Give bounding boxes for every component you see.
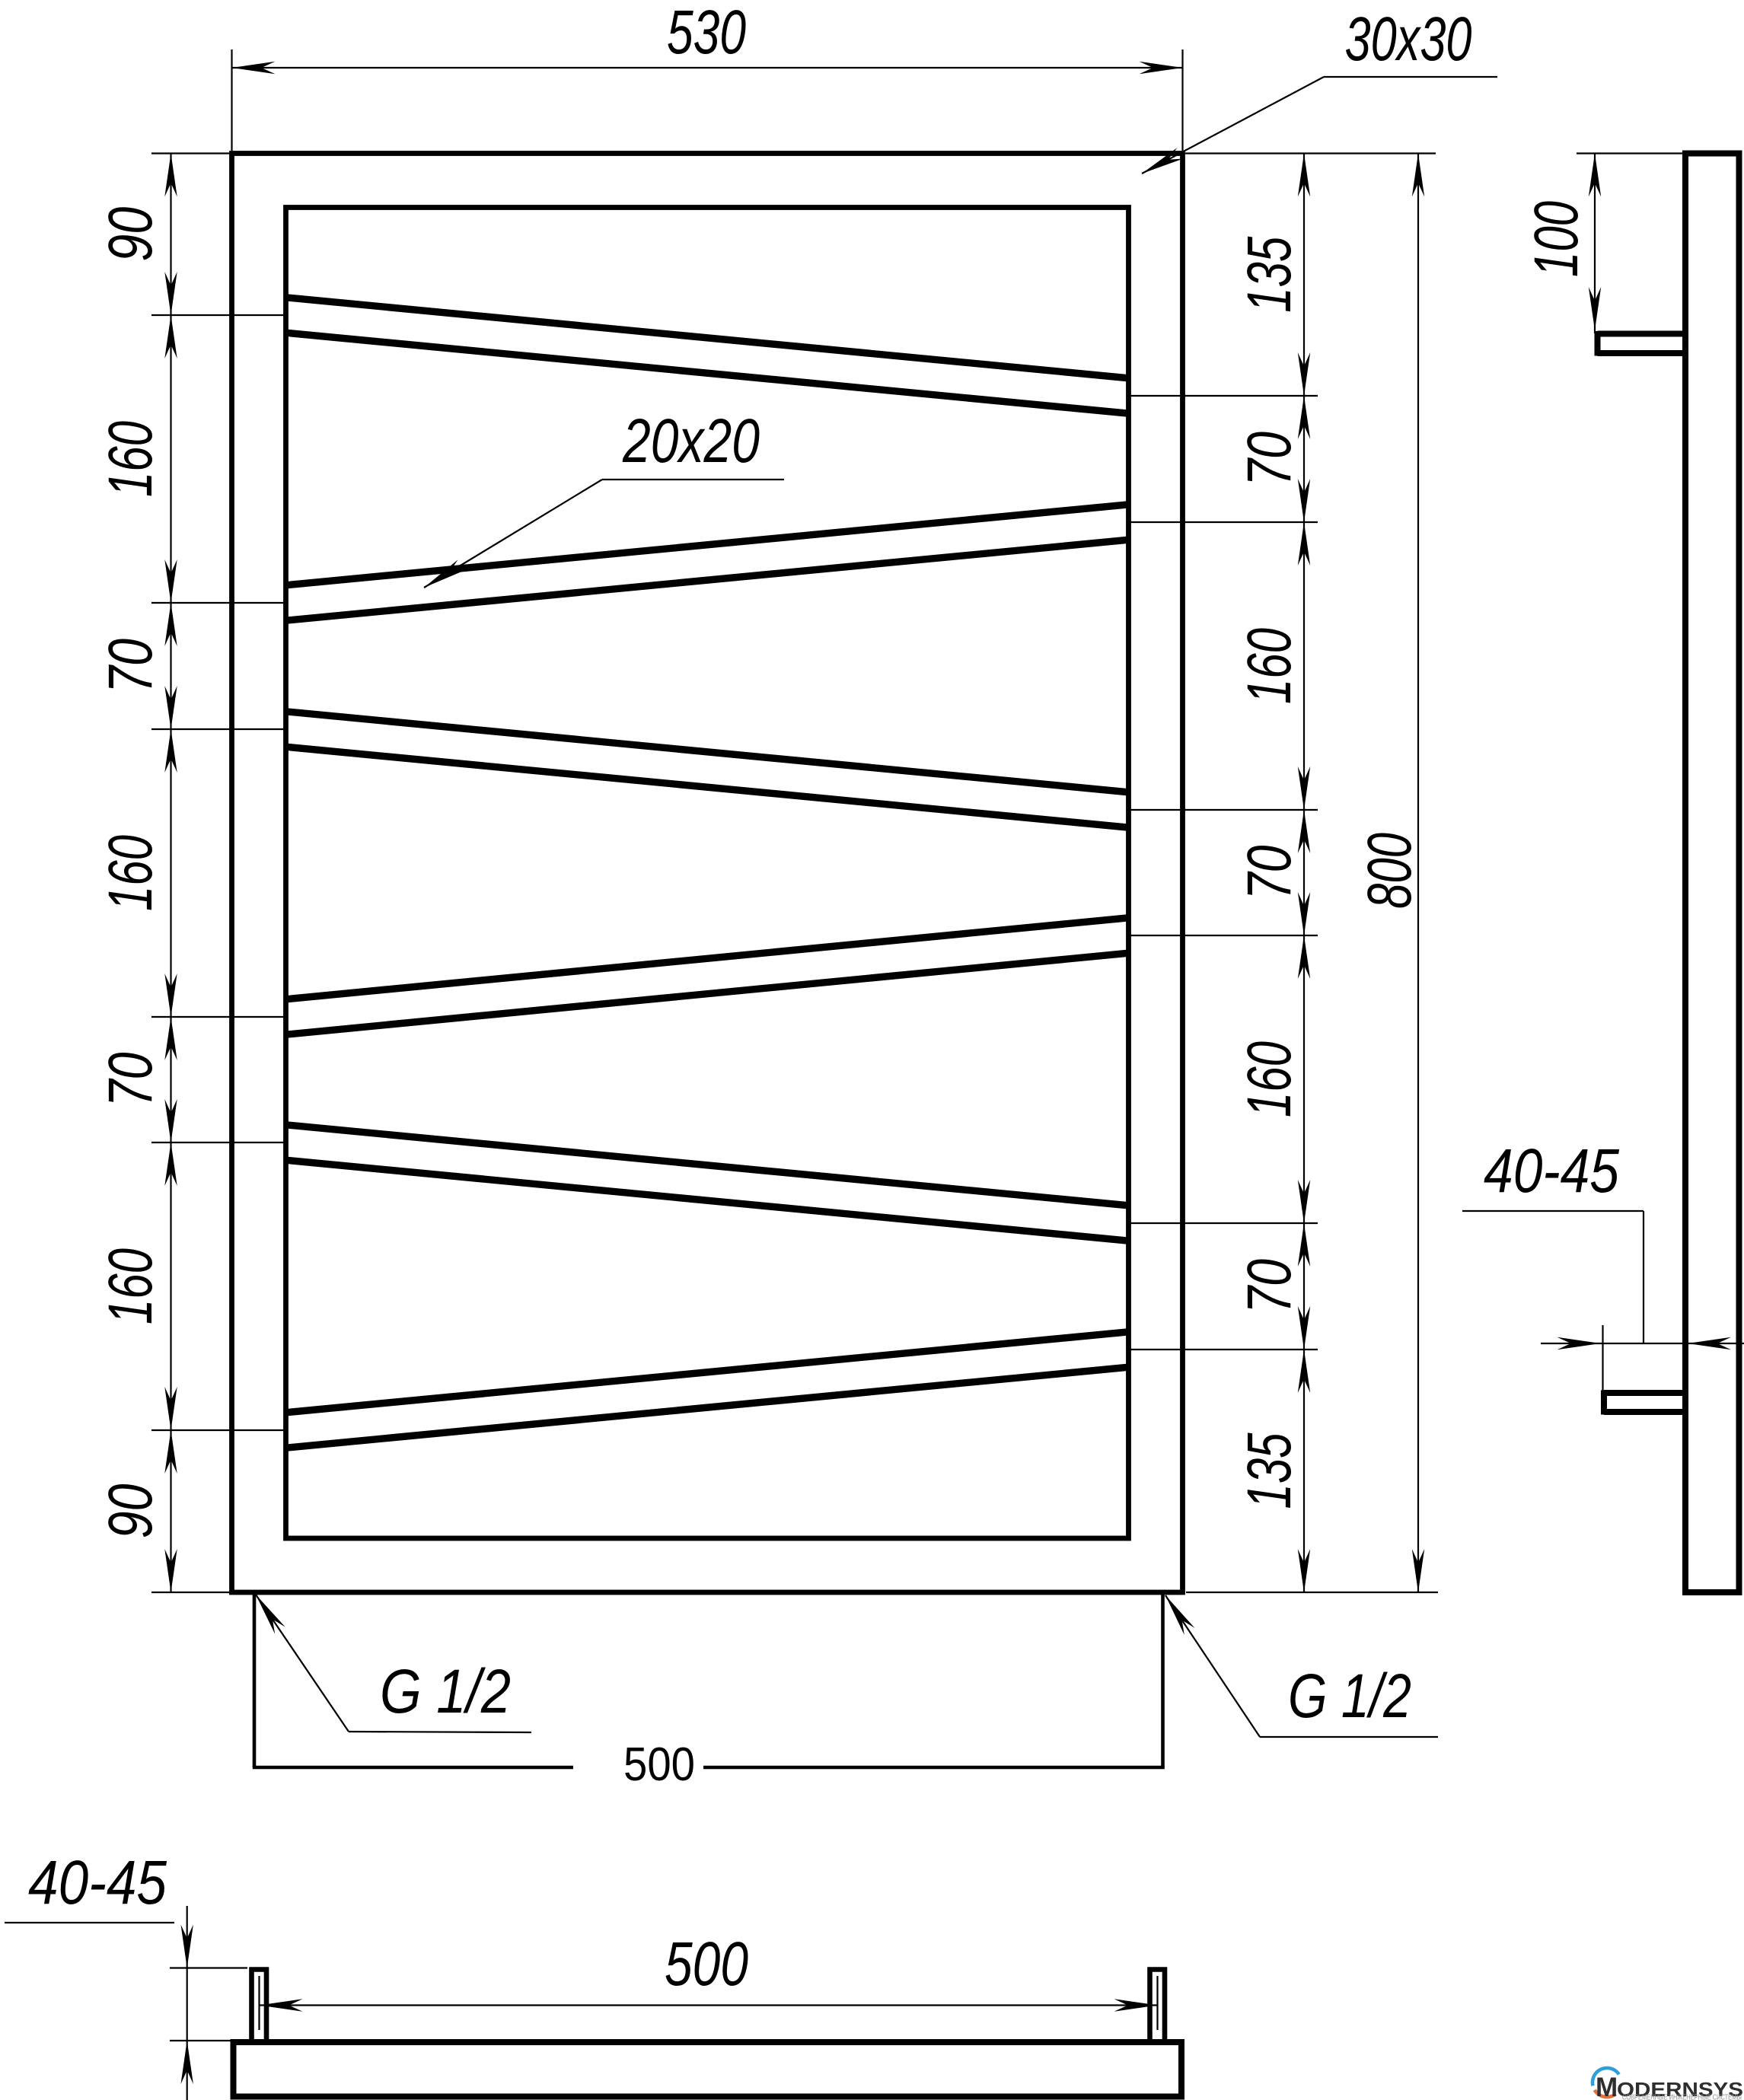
svg-text:70: 70 bbox=[96, 639, 165, 693]
svg-text:160: 160 bbox=[96, 835, 165, 911]
svg-text:70: 70 bbox=[96, 1053, 165, 1107]
svg-text:70: 70 bbox=[1235, 846, 1304, 900]
svg-text:160: 160 bbox=[96, 1248, 165, 1324]
svg-text:135: 135 bbox=[1235, 237, 1304, 313]
svg-text:800: 800 bbox=[1355, 833, 1424, 909]
svg-text:160: 160 bbox=[1235, 1041, 1304, 1117]
svg-text:500: 500 bbox=[623, 1738, 695, 1791]
svg-text:90: 90 bbox=[96, 1484, 165, 1539]
svg-text:160: 160 bbox=[1235, 628, 1304, 704]
svg-text:530: 530 bbox=[667, 0, 746, 67]
svg-text:70: 70 bbox=[1235, 432, 1304, 486]
svg-text:40-45: 40-45 bbox=[1484, 1136, 1619, 1206]
svg-text:90: 90 bbox=[96, 207, 165, 262]
svg-text:160: 160 bbox=[96, 421, 165, 497]
svg-text:70: 70 bbox=[1235, 1259, 1304, 1314]
svg-text:135: 135 bbox=[1235, 1432, 1304, 1509]
svg-text:30x30: 30x30 bbox=[1345, 5, 1472, 74]
svg-text:40-45: 40-45 bbox=[28, 1848, 167, 1917]
svg-text:G 1/2: G 1/2 bbox=[380, 1657, 511, 1726]
svg-text:100: 100 bbox=[1522, 201, 1591, 277]
svg-text:500: 500 bbox=[665, 1930, 748, 1999]
svg-text:20x20: 20x20 bbox=[622, 406, 760, 476]
svg-text:G 1/2: G 1/2 bbox=[1288, 1662, 1411, 1731]
svg-text:СОВРЕМЕННЫЕ ИНЖЕНЕРНЫЕ СИСТЕМЫ: СОВРЕМЕННЫЕ ИНЖЕНЕРНЫЕ СИСТЕМЫ bbox=[1622, 2093, 1742, 2100]
svg-text:M: M bbox=[1596, 2073, 1618, 2100]
